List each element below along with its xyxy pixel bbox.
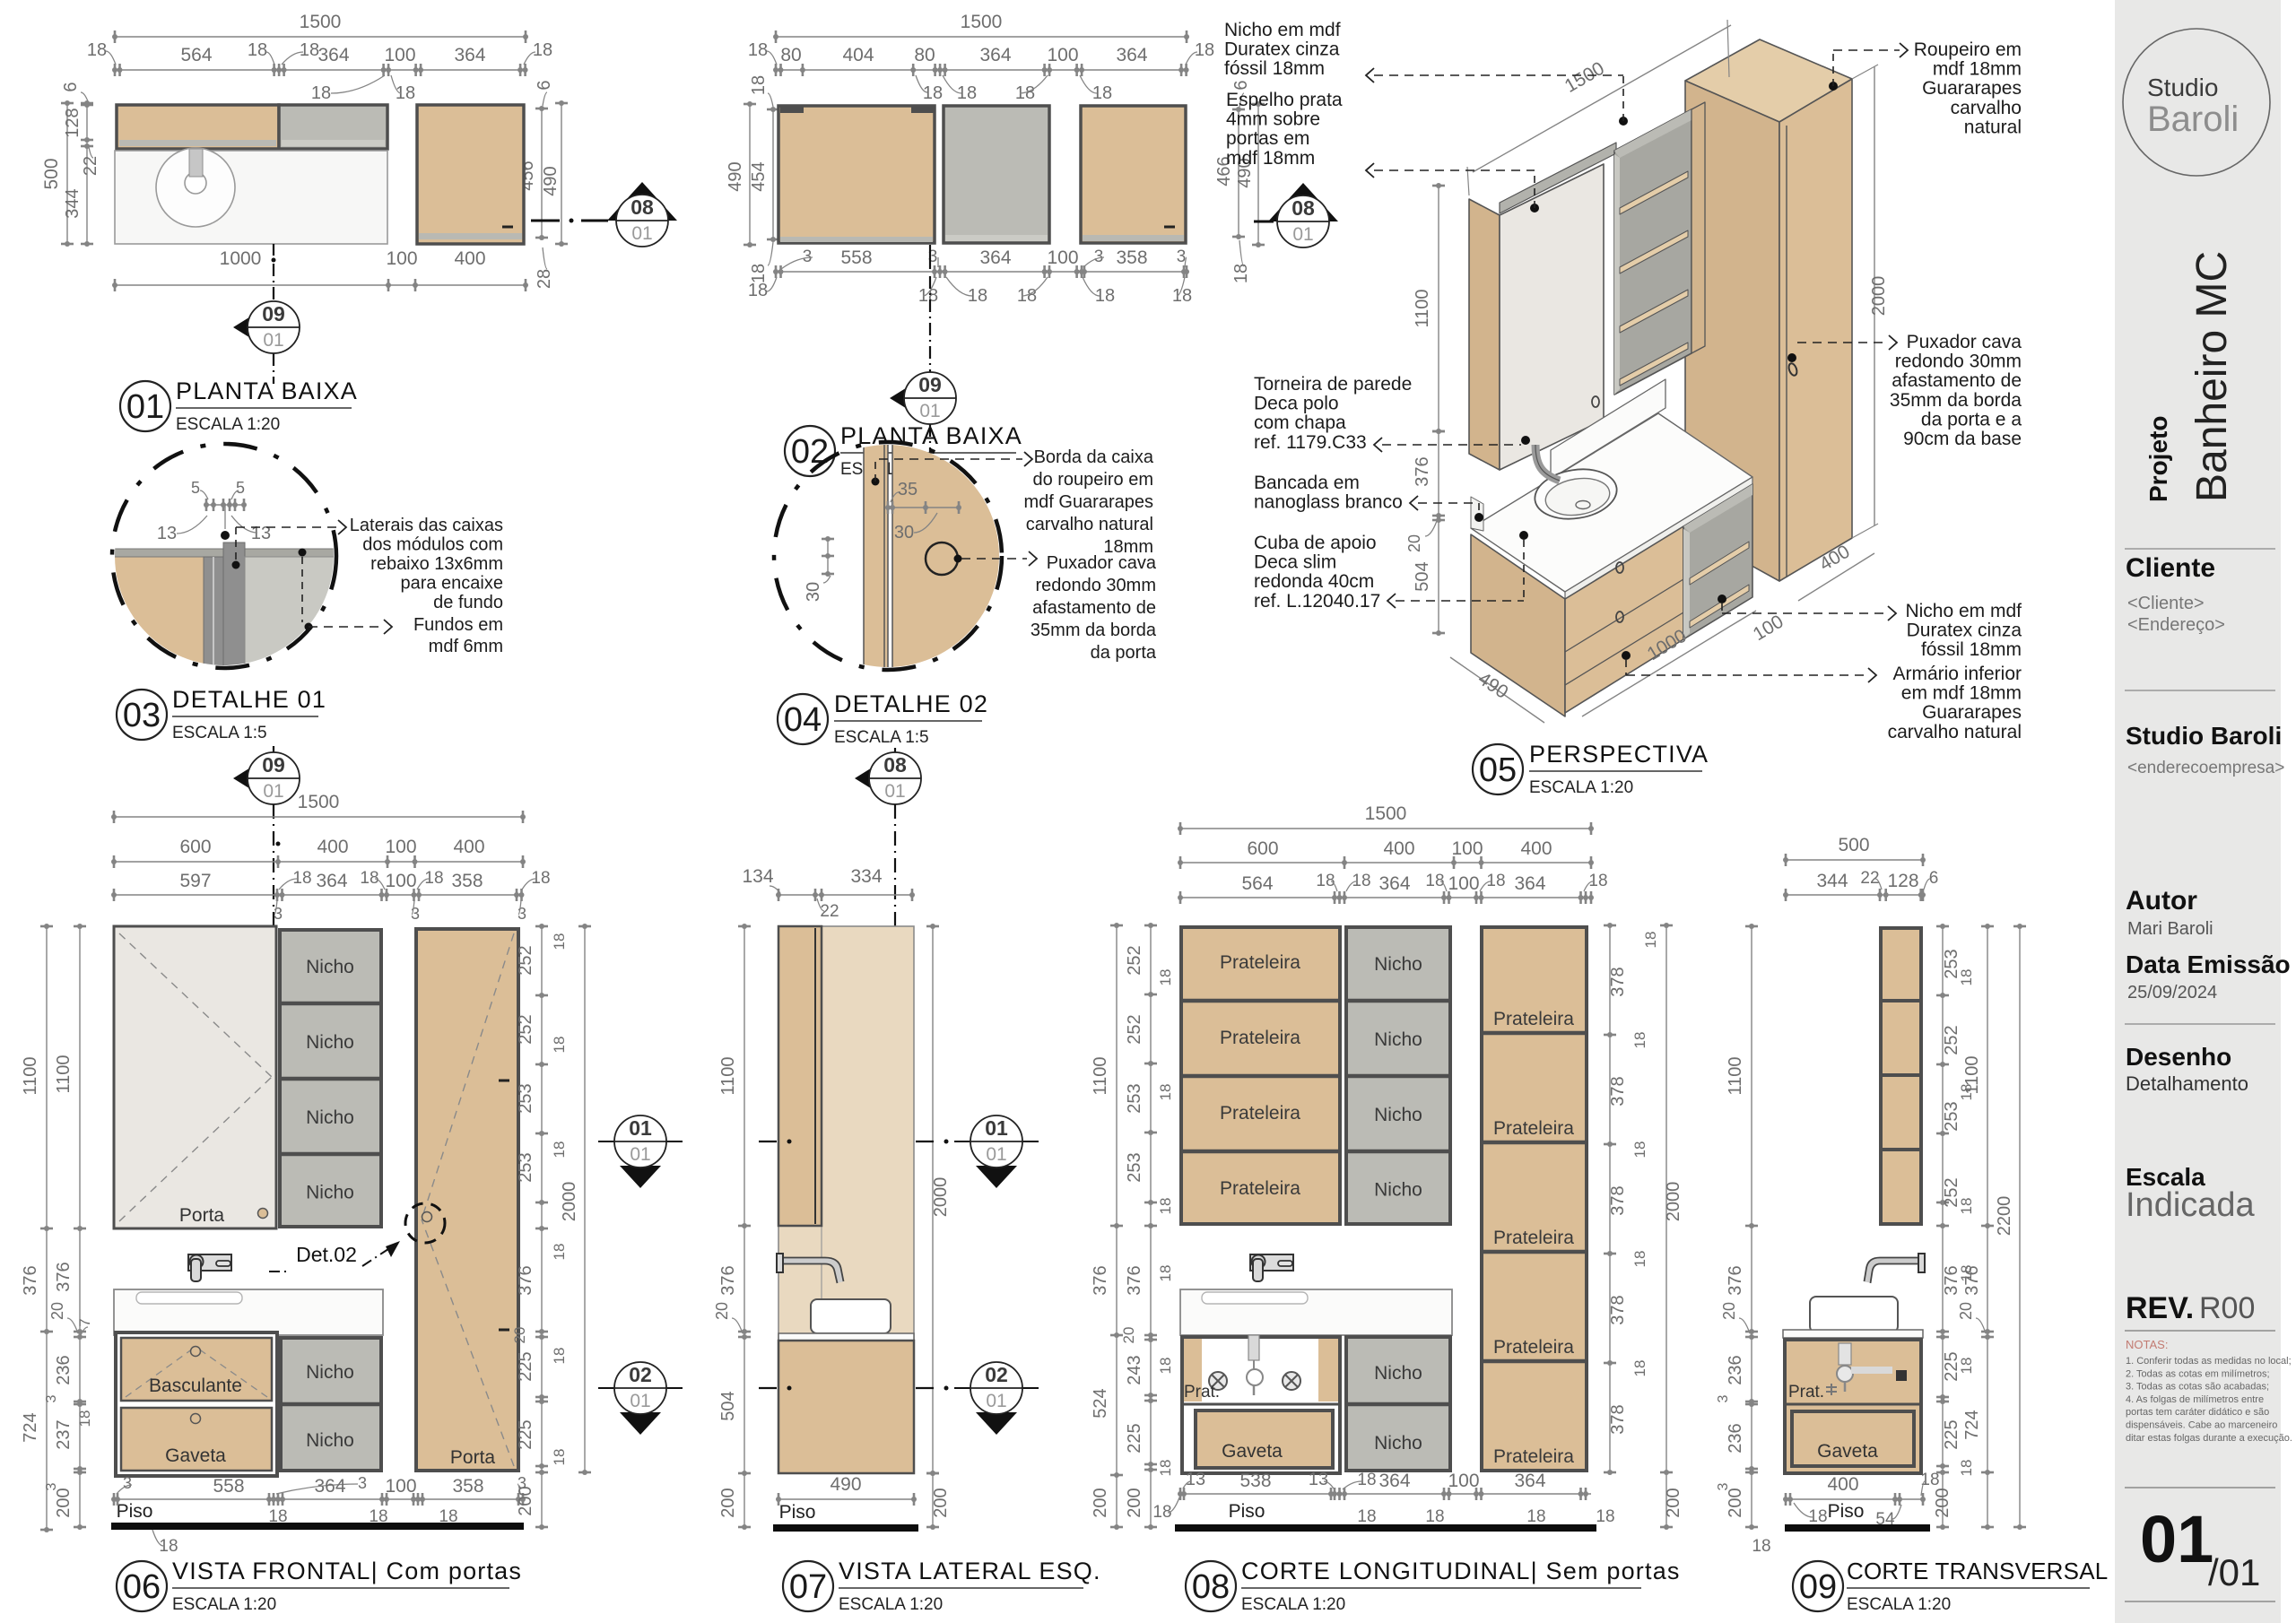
svg-text:18: 18 [533,40,552,60]
svg-text:364: 364 [1378,1471,1410,1491]
svg-text:01: 01 [630,1391,650,1411]
svg-text:5: 5 [191,479,200,497]
svg-text:20: 20 [48,1302,66,1320]
svg-text:18: 18 [439,1507,457,1526]
svg-text:2000: 2000 [1664,1182,1683,1222]
svg-text:carvalho: carvalho [1951,98,2022,118]
svg-text:18: 18 [76,1410,93,1428]
svg-text:253: 253 [1942,1101,1961,1131]
svg-text:1100: 1100 [1091,1056,1110,1095]
svg-text:20: 20 [511,1327,528,1344]
svg-text:Porta: Porta [179,1205,225,1226]
svg-text:376: 376 [21,1265,40,1295]
svg-text:ESCALA 1:20: ESCALA 1:20 [172,1595,276,1614]
svg-text:6: 6 [1929,869,1939,888]
svg-text:100: 100 [1047,45,1078,65]
svg-text:128: 128 [63,108,83,137]
svg-text:Prateleira: Prateleira [1493,1337,1574,1358]
svg-text:4. As folgas de milímetros ent: 4. As folgas de milímetros entre [2126,1394,2264,1405]
svg-text:Bancada em: Bancada em [1254,473,1360,493]
svg-text:01: 01 [629,1116,652,1140]
svg-text:18: 18 [1015,83,1035,103]
svg-text:18: 18 [748,281,768,300]
svg-text:597: 597 [179,871,211,891]
svg-text:724: 724 [21,1412,40,1442]
svg-text:Cliente: Cliente [2126,553,2215,583]
svg-text:PLANTA BAIXA: PLANTA BAIXA [176,378,358,404]
svg-text:376: 376 [1413,456,1432,486]
svg-text:Puxador cava: Puxador cava [1047,553,1157,573]
svg-text:25/09/2024: 25/09/2024 [2127,983,2217,1002]
svg-text:Piso: Piso [779,1502,816,1523]
svg-text:225: 225 [1942,1419,1961,1449]
svg-text:Porta: Porta [450,1447,496,1468]
svg-text:18: 18 [1157,1358,1174,1375]
svg-text:VISTA LATERAL ESQ.: VISTA LATERAL ESQ. [839,1558,1101,1584]
svg-text:564: 564 [180,45,212,65]
svg-text:08: 08 [631,195,654,219]
svg-text:Gaveta: Gaveta [165,1445,226,1466]
svg-text:18: 18 [87,40,107,60]
svg-text:18: 18 [748,40,768,60]
svg-text:1100: 1100 [21,1056,40,1095]
svg-text:500: 500 [41,158,62,189]
svg-text:35: 35 [898,480,918,499]
svg-text:35mm da borda: 35mm da borda [1890,390,2022,411]
svg-text:Guararapes: Guararapes [1922,78,2022,99]
svg-text:01: 01 [263,330,283,351]
svg-text:Duratex cinza: Duratex cinza [1907,621,2022,641]
svg-text:13: 13 [1309,1470,1328,1489]
svg-text:18: 18 [918,286,938,306]
svg-text:376: 376 [1091,1265,1110,1295]
svg-text:6: 6 [1231,80,1251,90]
svg-text:Deca slim: Deca slim [1254,552,1336,573]
svg-text:376: 376 [1726,1265,1745,1295]
svg-text:01: 01 [1292,224,1313,245]
svg-text:ref. 1179.C33: ref. 1179.C33 [1254,432,1367,453]
svg-text:ESCALA 1:20: ESCALA 1:20 [176,415,280,434]
svg-text:01: 01 [884,781,905,802]
svg-text:18: 18 [749,75,769,95]
svg-text:Nicho: Nicho [1374,1105,1422,1125]
svg-text:ESCALA 1:20: ESCALA 1:20 [1529,778,1633,797]
svg-text:R00: R00 [2199,1291,2255,1325]
svg-text:Prateleira: Prateleira [1493,1009,1574,1029]
svg-text:20: 20 [1720,1302,1738,1320]
svg-text:334: 334 [850,866,882,887]
svg-text:1000: 1000 [220,248,262,269]
svg-text:1100: 1100 [1962,1055,1982,1094]
svg-text:358: 358 [1116,247,1147,268]
svg-text:Nicho: Nicho [1374,954,1422,975]
svg-text:02: 02 [629,1363,652,1386]
svg-text:253: 253 [1125,1083,1144,1113]
svg-text:18: 18 [1157,1265,1174,1282]
svg-text:18: 18 [1958,1460,1975,1477]
svg-text:20: 20 [713,1302,731,1320]
svg-text:Gaveta: Gaveta [1817,1441,1878,1462]
svg-text:20: 20 [1405,534,1423,552]
svg-text:200: 200 [1726,1488,1745,1517]
svg-text:400: 400 [453,837,484,857]
svg-text:5: 5 [236,479,245,497]
svg-text:18: 18 [1958,1358,1975,1375]
svg-text:natural: natural [1964,117,2022,137]
svg-text:100: 100 [385,1476,416,1497]
svg-text:Nicho: Nicho [306,957,354,977]
svg-text:18: 18 [1316,872,1335,890]
svg-text:364: 364 [1514,1471,1545,1491]
svg-text:454: 454 [749,161,769,191]
svg-text:200: 200 [1664,1488,1683,1517]
svg-text:3: 3 [1177,247,1187,266]
svg-text:558: 558 [213,1476,244,1497]
svg-text:18: 18 [1352,872,1370,890]
svg-text:Nicho: Nicho [1374,1433,1422,1454]
svg-text:Nicho: Nicho [306,1183,354,1203]
svg-text:Nicho: Nicho [306,1430,354,1451]
svg-text:01: 01 [631,223,652,244]
svg-text:100: 100 [386,248,417,269]
svg-text:3: 3 [44,1394,59,1402]
svg-text:2000: 2000 [560,1182,579,1222]
svg-text:3: 3 [1716,1394,1731,1402]
svg-text:378: 378 [1608,1076,1628,1106]
svg-text:Piso: Piso [1229,1501,1265,1522]
svg-text:504: 504 [718,1391,738,1420]
svg-text:18: 18 [1425,872,1444,890]
svg-text:490: 490 [726,161,745,191]
svg-text:225: 225 [516,1419,535,1449]
svg-text:18: 18 [1752,1537,1770,1556]
svg-text:mdf 18mm: mdf 18mm [1933,59,2022,80]
svg-text:da porta e a: da porta e a [1921,409,2022,430]
svg-text:376: 376 [54,1262,74,1291]
svg-text:18: 18 [551,933,568,950]
svg-text:6: 6 [535,80,554,90]
svg-text:CORTE LONGITUDINAL| Sem portas: CORTE LONGITUDINAL| Sem portas [1241,1558,1681,1584]
svg-text:200: 200 [931,1488,951,1517]
svg-text:portas em: portas em [1226,128,1309,149]
svg-text:Studio: Studio [2147,74,2218,101]
svg-text:253: 253 [1125,1152,1144,1182]
svg-text:Prateleira: Prateleira [1220,1028,1300,1048]
svg-text:6: 6 [61,82,81,91]
svg-text:Gaveta: Gaveta [1222,1441,1283,1462]
svg-text:para encaixe: para encaixe [400,574,503,594]
svg-text:nanoglass branco: nanoglass branco [1254,492,1403,513]
svg-text:18: 18 [360,869,378,888]
svg-text:80: 80 [914,45,935,65]
svg-text:600: 600 [179,837,211,857]
svg-text:Nicho: Nicho [306,1362,354,1383]
svg-text:252: 252 [516,1014,535,1044]
svg-text:Puxador cava: Puxador cava [1907,332,2022,352]
svg-text:Banheiro MC: Banheiro MC [2188,251,2236,502]
svg-text:80: 80 [780,45,801,65]
svg-text:2200: 2200 [1995,1196,2014,1237]
svg-text:09: 09 [262,753,285,777]
svg-text:18: 18 [1642,932,1659,949]
svg-text:Prateleira: Prateleira [1493,1228,1574,1248]
svg-text:18: 18 [551,1141,568,1159]
svg-text:Projeto: Projeto [2144,416,2172,502]
svg-text:Prateleira: Prateleira [1493,1118,1574,1139]
svg-text:Piso: Piso [1828,1501,1865,1522]
svg-text:18: 18 [1526,1507,1545,1526]
svg-text:ESCALA 1:5: ESCALA 1:5 [172,724,267,742]
svg-text:Indicada: Indicada [2126,1186,2256,1224]
svg-text:20: 20 [1120,1327,1137,1344]
svg-text:mdf Guararapes: mdf Guararapes [1023,492,1153,512]
svg-text:400: 400 [1827,1474,1858,1495]
svg-text:06: 06 [123,1568,161,1606]
svg-text:Desenho: Desenho [2126,1043,2231,1071]
svg-text:18: 18 [551,1449,568,1466]
svg-text:PERSPECTIVA: PERSPECTIVA [1529,741,1709,768]
svg-text:Armário inferior: Armário inferior [1892,664,2022,684]
svg-text:18: 18 [369,1507,387,1526]
svg-text:18: 18 [1195,40,1214,60]
svg-text:18: 18 [300,40,319,60]
svg-text:DETALHE 02: DETALHE 02 [834,690,988,717]
svg-text:237: 237 [54,1419,74,1449]
svg-text:236: 236 [1726,1423,1745,1453]
svg-text:Autor: Autor [2126,886,2197,916]
svg-text:01: 01 [986,1144,1006,1165]
svg-text:Piso: Piso [117,1501,153,1522]
svg-text:200: 200 [1091,1488,1110,1517]
svg-text:18: 18 [1157,1084,1174,1101]
svg-text:ditar estas folgas durante a e: ditar estas folgas durante a execução. [2126,1433,2292,1444]
svg-text:18: 18 [1425,1507,1444,1526]
svg-text:18: 18 [1631,1032,1648,1049]
svg-text:252: 252 [1125,945,1144,975]
svg-text:378: 378 [1608,1404,1628,1434]
svg-text:18: 18 [551,1348,568,1365]
svg-text:ESCALA 1:5: ESCALA 1:5 [834,728,929,747]
svg-text:Roupeiro em: Roupeiro em [1914,39,2022,60]
svg-text:100: 100 [1448,873,1479,894]
svg-text:08: 08 [1192,1568,1230,1606]
svg-text:2. Todas as cotas em milímetro: 2. Todas as cotas em milímetros; [2126,1368,2270,1379]
svg-text:Data Emissão: Data Emissão [2126,950,2291,978]
svg-text:54: 54 [1875,1510,1895,1529]
svg-text:600: 600 [1247,838,1278,859]
svg-text:134: 134 [742,866,773,887]
svg-text:1. Conferir todas as medidas n: 1. Conferir todas as medidas no local; [2126,1356,2292,1367]
svg-text:18: 18 [1157,1198,1174,1215]
svg-text:09: 09 [918,373,942,396]
svg-text:Nicho em mdf: Nicho em mdf [1905,601,2022,621]
svg-text:Prateleira: Prateleira [1220,1178,1300,1199]
svg-text:18: 18 [1588,872,1607,890]
svg-text:500: 500 [1838,835,1869,855]
svg-text:18: 18 [396,83,415,103]
svg-text:30: 30 [804,582,823,602]
svg-text:Laterais das caixas: Laterais das caixas [350,516,503,535]
svg-text:400: 400 [1383,838,1414,859]
svg-text:REV.: REV. [2126,1291,2194,1325]
svg-text:em mdf 18mm: em mdf 18mm [1901,683,2022,704]
svg-text:358: 358 [452,1476,483,1497]
svg-text:252: 252 [1942,1025,1961,1055]
svg-text:ESCALA 1:20: ESCALA 1:20 [1241,1595,1345,1614]
svg-text:Studio Baroli: Studio Baroli [2126,722,2282,750]
svg-text:NOTAS:: NOTAS: [2126,1338,2168,1351]
svg-text:Duratex cinza: Duratex cinza [1224,39,1340,60]
svg-text:4mm sobre: 4mm sobre [1226,109,1320,130]
svg-text:Baroli: Baroli [2147,100,2239,139]
svg-text:18: 18 [1631,1360,1648,1377]
svg-text:7: 7 [76,1318,93,1326]
svg-text:18: 18 [1596,1507,1614,1526]
svg-text:558: 558 [840,247,872,268]
svg-text:afastamento de: afastamento de [1032,598,1156,618]
svg-text:com chapa: com chapa [1254,412,1346,433]
svg-text:Nicho: Nicho [1374,1363,1422,1384]
svg-text:364: 364 [979,247,1011,268]
svg-text:364: 364 [1378,873,1410,894]
svg-text:portas tem caráter didático e: portas tem caráter didático e são [2126,1407,2269,1418]
svg-text:CORTE TRANSVERSAL: CORTE TRANSVERSAL [1847,1558,2108,1584]
svg-text:490: 490 [541,166,561,195]
svg-text:Nicho: Nicho [306,1032,354,1053]
svg-text:/01: /01 [2208,1551,2260,1593]
svg-text:Mari Baroli: Mari Baroli [2127,919,2213,939]
svg-text:200: 200 [516,1486,535,1515]
svg-text:538: 538 [1239,1471,1271,1491]
svg-text:2000: 2000 [931,1177,951,1218]
svg-text:3: 3 [358,1474,367,1492]
svg-text:01: 01 [985,1116,1008,1140]
svg-text:18: 18 [1631,1141,1648,1159]
svg-text:252: 252 [516,945,535,975]
svg-text:200: 200 [1125,1488,1144,1517]
svg-text:Prateleira: Prateleira [1493,1446,1574,1467]
svg-text:Cuba de apoio: Cuba de apoio [1254,533,1377,553]
svg-text:04: 04 [784,701,822,739]
svg-text:490: 490 [830,1474,861,1495]
svg-text:200: 200 [1933,1488,1952,1517]
svg-text:2000: 2000 [1869,276,1889,317]
svg-text:01: 01 [630,1144,650,1165]
svg-text:364: 364 [317,45,349,65]
svg-text:18: 18 [311,83,331,103]
svg-text:mdf 18mm: mdf 18mm [1226,148,1315,169]
svg-text:Prateleira: Prateleira [1220,952,1300,973]
svg-text:376: 376 [516,1265,535,1295]
svg-text:ESCALA 1:20: ESCALA 1:20 [1847,1595,1951,1614]
svg-text:Detalhamento: Detalhamento [2126,1072,2248,1095]
svg-text:Deca polo: Deca polo [1254,394,1339,414]
svg-text:do roupeiro em: do roupeiro em [1032,470,1153,490]
svg-text:243: 243 [1125,1355,1144,1384]
svg-text:22: 22 [81,156,100,176]
svg-text:dispensáveis. Cabe ao marcenei: dispensáveis. Cabe ao marceneiro [2126,1420,2277,1431]
svg-text:Prateleira: Prateleira [1220,1103,1300,1124]
svg-text:VISTA FRONTAL| Com portas: VISTA FRONTAL| Com portas [172,1558,522,1584]
svg-text:1500: 1500 [961,12,1003,32]
svg-text:18: 18 [551,1037,568,1054]
svg-text:100: 100 [385,871,416,891]
svg-text:1100: 1100 [1413,289,1432,327]
svg-text:ref. L.12040.17: ref. L.12040.17 [1254,591,1380,612]
svg-text:376: 376 [718,1265,738,1295]
svg-text:344: 344 [1816,871,1848,891]
svg-text:Espelho prata: Espelho prata [1226,90,1343,110]
svg-text:128: 128 [1887,871,1918,891]
svg-text:DETALHE 01: DETALHE 01 [172,686,326,713]
svg-text:376: 376 [1125,1265,1144,1295]
svg-text:18: 18 [923,83,943,103]
svg-text:<Cliente>: <Cliente> [2127,594,2205,613]
svg-text:01: 01 [126,388,164,426]
svg-text:364: 364 [979,45,1011,65]
svg-text:100: 100 [1451,838,1483,859]
svg-text:<Endereço>: <Endereço> [2127,615,2225,635]
svg-text:18: 18 [159,1537,178,1556]
svg-text:18: 18 [1631,1251,1648,1268]
svg-text:Fundos em: Fundos em [413,615,503,635]
svg-text:Nicho: Nicho [1374,1180,1422,1201]
svg-text:13: 13 [157,524,177,543]
svg-text:378: 378 [1608,1295,1628,1324]
svg-text:20: 20 [1957,1302,1975,1320]
svg-text:ESCALA 1:20: ESCALA 1:20 [839,1595,943,1614]
svg-text:Prat.: Prat. [1788,1383,1824,1402]
svg-text:18: 18 [1958,1198,1975,1215]
svg-text:18: 18 [1157,1460,1174,1477]
svg-text:18: 18 [268,1507,287,1526]
svg-text:3: 3 [123,1474,132,1492]
svg-text:redondo 30mm: redondo 30mm [1895,352,2022,372]
svg-text:524: 524 [1091,1388,1110,1418]
svg-text:378: 378 [1608,1185,1628,1215]
svg-text:1100: 1100 [1726,1056,1745,1095]
svg-text:344: 344 [63,188,83,218]
svg-text:364: 364 [314,1476,345,1497]
svg-text:200: 200 [54,1488,74,1517]
svg-text:200: 200 [718,1488,738,1517]
svg-text:09: 09 [1799,1568,1837,1606]
svg-text:18: 18 [1357,1471,1376,1489]
svg-text:225: 225 [1125,1423,1144,1453]
svg-text:08: 08 [883,753,907,777]
svg-text:564: 564 [1241,873,1273,894]
svg-text:01: 01 [919,401,940,421]
svg-text:253: 253 [516,1083,535,1113]
svg-text:Nicho em mdf: Nicho em mdf [1224,20,1341,40]
svg-text:3. Todas as cotas são acabadas: 3. Todas as cotas são acabadas; [2126,1382,2269,1393]
svg-text:100: 100 [1448,1471,1479,1491]
svg-text:18: 18 [551,1244,568,1261]
svg-text:02: 02 [985,1363,1008,1386]
svg-text:Torneira de parede: Torneira de parede [1254,374,1412,395]
svg-text:05: 05 [1479,751,1517,789]
svg-text:Prat.: Prat. [1184,1383,1220,1402]
svg-text:fóssil 18mm: fóssil 18mm [1224,58,1325,79]
svg-text:404: 404 [842,45,874,65]
svg-text:1100: 1100 [718,1056,738,1095]
svg-text:30: 30 [894,523,914,542]
svg-text:Det.02: Det.02 [296,1243,357,1266]
svg-text:364: 364 [316,871,347,891]
svg-text:01: 01 [263,781,283,802]
svg-text:253: 253 [516,1152,535,1182]
svg-text:28: 28 [535,269,554,289]
